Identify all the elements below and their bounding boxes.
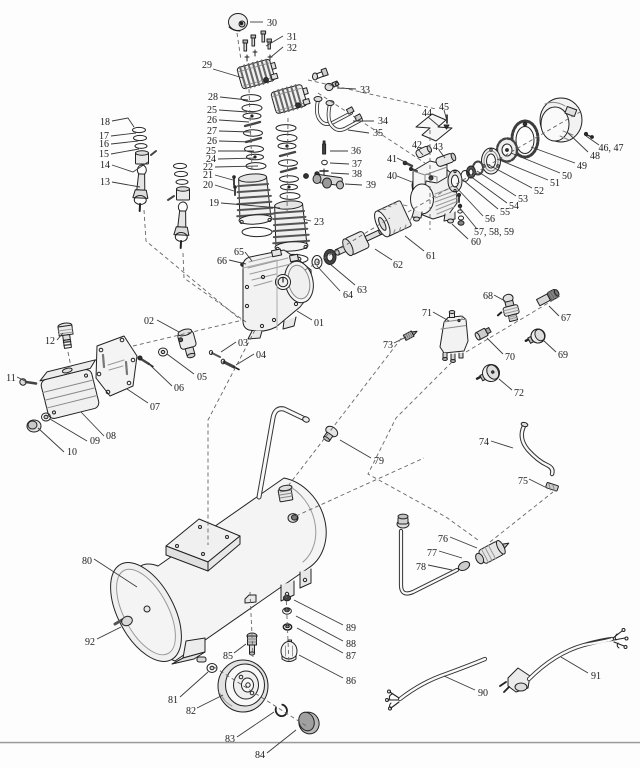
svg-text:77: 77: [427, 548, 437, 559]
svg-text:78: 78: [416, 562, 426, 573]
svg-text:53: 53: [518, 194, 528, 205]
svg-text:29: 29: [202, 60, 212, 71]
svg-text:26: 26: [207, 115, 217, 126]
svg-text:86: 86: [346, 676, 356, 687]
svg-text:07: 07: [150, 402, 160, 413]
svg-text:18: 18: [100, 117, 110, 128]
svg-text:04: 04: [256, 350, 266, 361]
svg-text:32: 32: [287, 43, 297, 54]
svg-text:01: 01: [314, 318, 324, 329]
svg-text:89: 89: [346, 623, 356, 634]
svg-text:67: 67: [561, 313, 571, 324]
svg-text:45: 45: [439, 102, 449, 113]
svg-text:75: 75: [518, 476, 528, 487]
svg-text:73: 73: [383, 340, 393, 351]
svg-text:81: 81: [168, 695, 178, 706]
svg-text:31: 31: [287, 32, 297, 43]
svg-text:62: 62: [393, 260, 403, 271]
svg-text:38: 38: [352, 169, 362, 180]
svg-text:33: 33: [360, 85, 370, 96]
svg-text:54: 54: [509, 201, 519, 212]
svg-text:41: 41: [387, 154, 397, 165]
svg-text:83: 83: [225, 734, 235, 745]
svg-text:34: 34: [378, 116, 388, 127]
svg-text:55: 55: [500, 207, 510, 218]
svg-text:64: 64: [343, 290, 353, 301]
svg-text:02: 02: [144, 316, 154, 327]
svg-text:52: 52: [534, 186, 544, 197]
svg-text:05: 05: [197, 372, 207, 383]
svg-text:30: 30: [267, 18, 277, 29]
svg-text:09: 09: [90, 436, 100, 447]
svg-text:63: 63: [357, 285, 367, 296]
svg-text:79: 79: [374, 456, 384, 467]
svg-text:74: 74: [479, 437, 489, 448]
svg-text:66: 66: [217, 256, 227, 267]
svg-text:36: 36: [351, 146, 361, 157]
svg-text:03: 03: [238, 338, 248, 349]
svg-text:14: 14: [100, 160, 110, 171]
svg-text:12: 12: [45, 336, 55, 347]
svg-text:91: 91: [591, 671, 601, 682]
svg-text:51: 51: [550, 178, 560, 189]
svg-text:84: 84: [255, 750, 265, 761]
svg-text:15: 15: [99, 149, 109, 160]
svg-text:76: 76: [438, 534, 448, 545]
svg-text:39: 39: [366, 180, 376, 191]
svg-text:61: 61: [426, 251, 436, 262]
svg-text:13: 13: [100, 177, 110, 188]
svg-text:71: 71: [422, 308, 432, 319]
svg-text:08: 08: [106, 431, 116, 442]
svg-text:88: 88: [346, 639, 356, 650]
svg-text:68: 68: [483, 291, 493, 302]
svg-text:11: 11: [6, 373, 16, 384]
svg-text:19: 19: [209, 198, 219, 209]
svg-text:42: 42: [412, 140, 422, 151]
svg-text:44: 44: [422, 108, 432, 119]
svg-text:69: 69: [558, 350, 568, 361]
svg-text:87: 87: [346, 651, 356, 662]
svg-text:82: 82: [186, 706, 196, 717]
svg-text:70: 70: [505, 352, 515, 363]
svg-text:10: 10: [67, 447, 77, 458]
svg-text:28: 28: [208, 92, 218, 103]
svg-text:65: 65: [234, 247, 244, 258]
svg-text:23: 23: [314, 217, 324, 228]
svg-text:50: 50: [562, 171, 572, 182]
svg-text:06: 06: [174, 383, 184, 394]
svg-text:72: 72: [514, 388, 524, 399]
svg-text:40: 40: [387, 171, 397, 182]
svg-text:60: 60: [471, 237, 481, 248]
svg-text:92: 92: [85, 637, 95, 648]
svg-text:56: 56: [485, 214, 495, 225]
svg-text:20: 20: [203, 180, 213, 191]
svg-text:43: 43: [433, 142, 443, 153]
svg-text:46, 47: 46, 47: [599, 143, 624, 154]
svg-text:90: 90: [478, 688, 488, 699]
svg-text:49: 49: [577, 161, 587, 172]
svg-text:80: 80: [82, 556, 92, 567]
svg-text:48: 48: [590, 151, 600, 162]
svg-text:85: 85: [223, 651, 233, 662]
svg-text:35: 35: [373, 128, 383, 139]
